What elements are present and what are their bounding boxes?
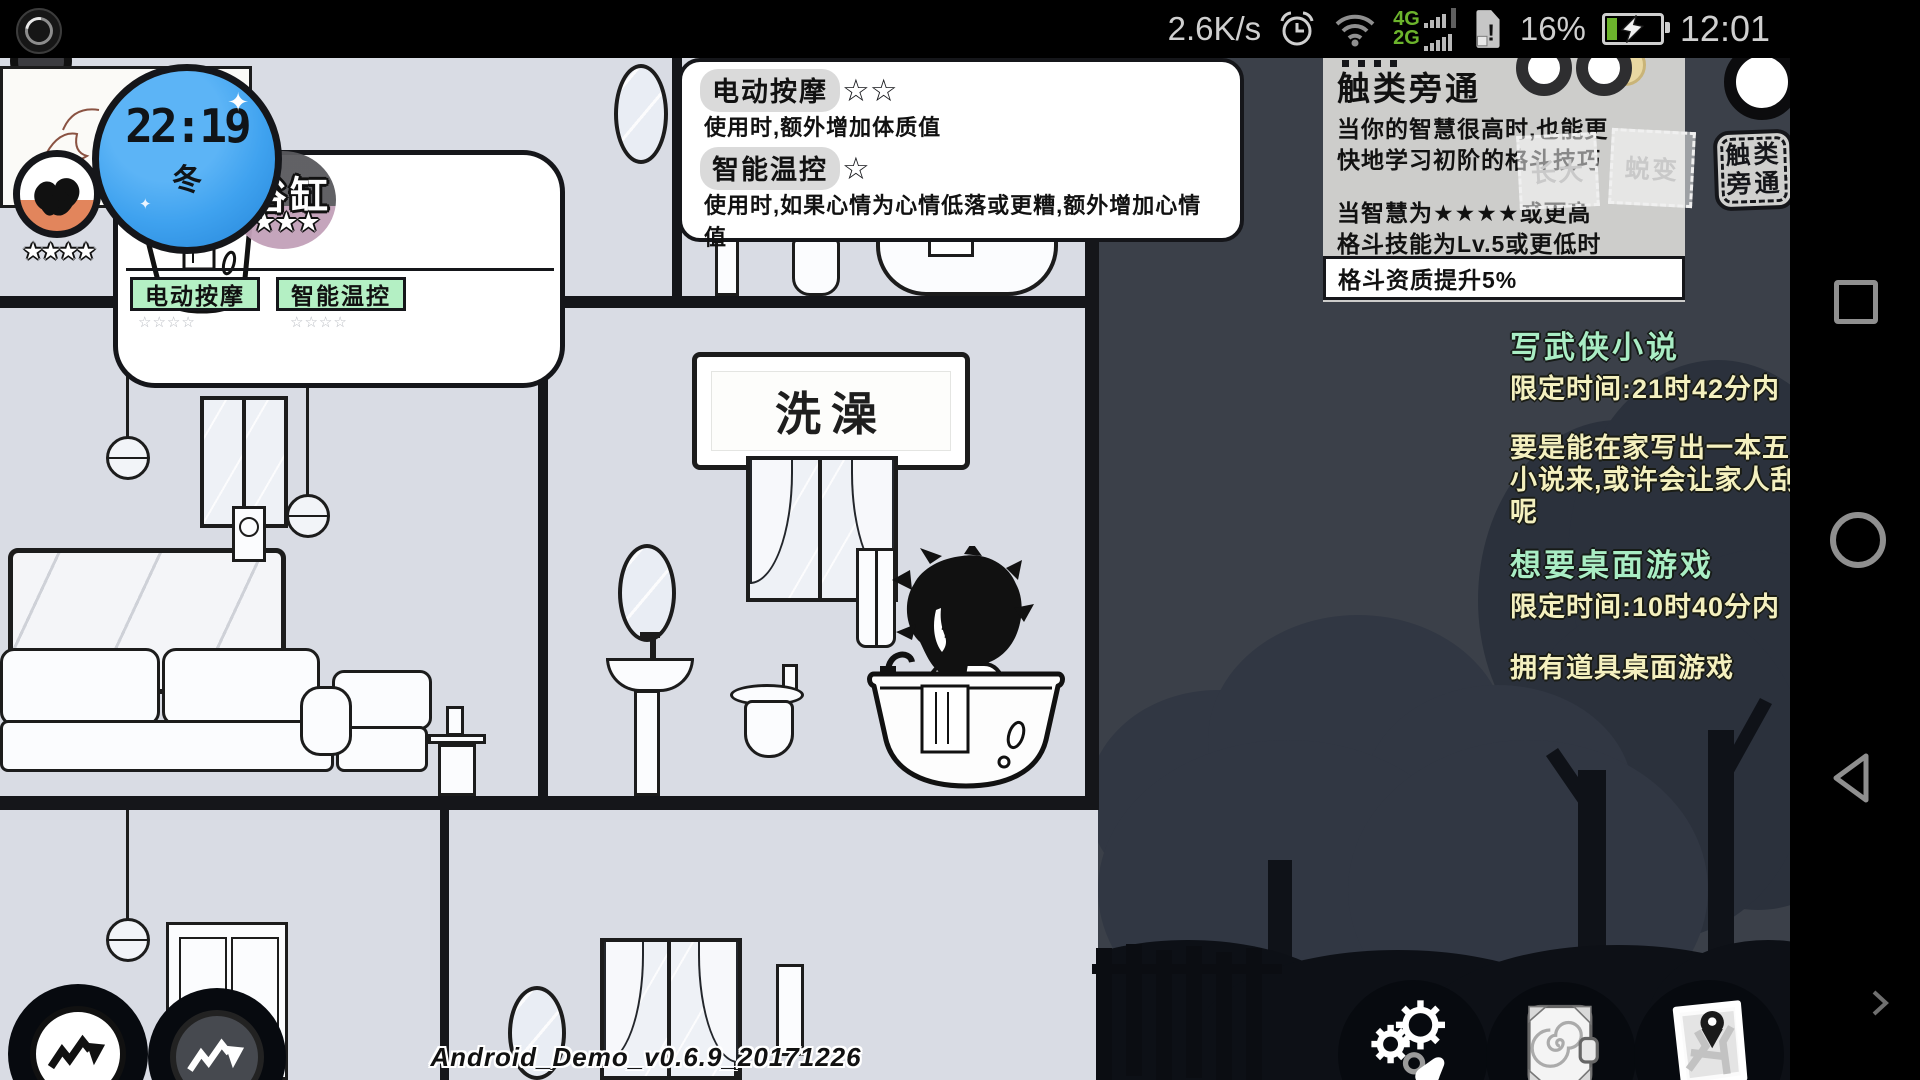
bath-sign: 洗澡	[692, 352, 970, 470]
skill-stamp-text: 触类	[1725, 140, 1782, 171]
skill-stamp[interactable]: 触类 旁通	[1713, 129, 1790, 212]
hanging-lamp	[106, 918, 150, 962]
ghost-stars: ☆☆☆☆	[290, 313, 348, 331]
flexed-arm-icon	[30, 167, 84, 221]
skill-bonus: 格斗资质提升5%	[1323, 256, 1685, 300]
recents-button[interactable]	[1834, 280, 1878, 324]
sofa-cushion	[162, 648, 320, 726]
sofa-cushion	[0, 648, 160, 726]
effects-tooltip: 电动按摩 ☆☆ 使用时,额外增加体质值 智能温控 ☆ 使用时,如果心情为心情低落…	[678, 58, 1244, 242]
sparkle-icon: ✦	[139, 195, 152, 213]
effect-name-massage: 电动按摩	[700, 69, 840, 112]
side-table-body	[438, 744, 476, 796]
upper-mirror	[614, 64, 668, 164]
battery-percent: 16%	[1520, 10, 1586, 48]
map-icon	[1663, 995, 1755, 1080]
sink-faucet-pipe	[650, 632, 656, 660]
quest-title: 写武侠小说	[1510, 322, 1790, 367]
quest-desc: 呢	[1510, 496, 1790, 528]
tag-electric-massage: 电动按摩	[130, 277, 260, 311]
sink-pedestal	[634, 690, 660, 796]
quest-desc: 拥有道具桌面游戏	[1510, 646, 1790, 685]
hanging-lamp	[286, 494, 330, 538]
net-speed: 2.6K/s	[1168, 10, 1262, 48]
ghost-stamp-grow: 长大	[1516, 132, 1600, 210]
signal-bars-icon	[1424, 8, 1456, 51]
version-text: Android_Demo_v0.6.9_20171226	[396, 1042, 896, 1073]
fence	[1092, 944, 1292, 1080]
effect-name-thermo: 智能温控	[700, 147, 840, 190]
bathroom-mirror	[618, 544, 676, 642]
charging-bolt-icon	[1613, 12, 1649, 46]
quest-list: 写武侠小说 限定时间:21时42分内 要是能在家写出一本五 小说来,或许会让家人…	[1510, 322, 1790, 685]
quest-item[interactable]: 写武侠小说 限定时间:21时42分内 要是能在家写出一本五 小说来,或许会让家人…	[1510, 322, 1790, 528]
quest-desc: 要是能在家写出一本五	[1510, 432, 1790, 464]
strength-stat-gauge[interactable]	[13, 150, 101, 238]
game-scene: 洗澡	[0, 0, 1790, 1080]
back-button[interactable]	[1828, 750, 1872, 806]
declining-zigzag-icon	[45, 1026, 111, 1080]
sparkle-icon: ✦	[227, 87, 249, 118]
bath-sign-label: 洗澡	[775, 378, 887, 444]
speech-dots	[1342, 60, 1397, 67]
hanging-lamp	[106, 436, 150, 480]
bathtub[interactable]	[866, 640, 1066, 795]
wifi-icon	[1333, 11, 1377, 47]
speaker-box	[232, 506, 266, 562]
quest-title: 想要桌面游戏	[1510, 540, 1790, 585]
strength-stars: ★★★★	[10, 238, 106, 265]
sofa-seat	[0, 720, 334, 772]
gears-icon	[1365, 995, 1461, 1080]
status-time: 12:01	[1680, 8, 1770, 50]
sofa-armrest	[300, 686, 352, 756]
ghost-stars: ☆☆☆☆	[138, 313, 196, 331]
quest-time-limit: 限定时间:21时42分内	[1510, 367, 1790, 406]
alarm-icon	[1277, 9, 1317, 49]
tag-smart-thermostat: 智能温控	[276, 277, 406, 311]
quest-desc: 小说来,或许会让家人刮	[1510, 464, 1790, 496]
effect-desc: 使用时,如果心情为心情低落或更糟,额外增加心情值	[704, 188, 1222, 252]
game-screen: 洗澡	[0, 0, 1920, 1080]
android-nav-bar	[1790, 0, 1920, 1080]
battery-icon	[1602, 13, 1664, 45]
ghost-stamp-transform: 蜕变	[1608, 128, 1696, 208]
cell-signal: 4G 2G	[1393, 8, 1456, 51]
home-button[interactable]	[1830, 512, 1886, 568]
lamp-cord	[126, 810, 129, 920]
sim-alert-glyph: !	[1487, 20, 1495, 46]
net-2g-label: 2G	[1393, 29, 1420, 48]
divider	[126, 268, 554, 271]
sim-alert-icon: !	[1472, 8, 1504, 50]
status-app-icon	[16, 8, 62, 54]
effect-stars: ☆☆	[842, 73, 898, 109]
skill-stamp-text: 旁通	[1726, 169, 1783, 200]
nav-expand-chevron[interactable]	[1866, 986, 1894, 1020]
drinking-glass	[446, 706, 464, 736]
quest-item[interactable]: 想要桌面游戏 限定时间:10时40分内 拥有道具桌面游戏	[1510, 540, 1790, 685]
effect-desc: 使用时,额外增加体质值	[704, 110, 1222, 142]
main-floor-line	[0, 796, 1098, 810]
lower-room-wall	[440, 810, 449, 1080]
effect-stars: ☆	[842, 151, 870, 187]
game-clock[interactable]: 22:19 冬 ✦ ✦	[92, 64, 282, 254]
android-status-bar: 2.6K/s 4G 2G ! 16%	[0, 0, 1920, 58]
book-icon	[1516, 998, 1606, 1080]
toilet-body	[744, 700, 794, 758]
quest-time-limit: 限定时间:10时40分内	[1510, 585, 1790, 624]
declining-zigzag-icon	[184, 1029, 250, 1080]
game-clock-season: 冬	[99, 155, 275, 199]
